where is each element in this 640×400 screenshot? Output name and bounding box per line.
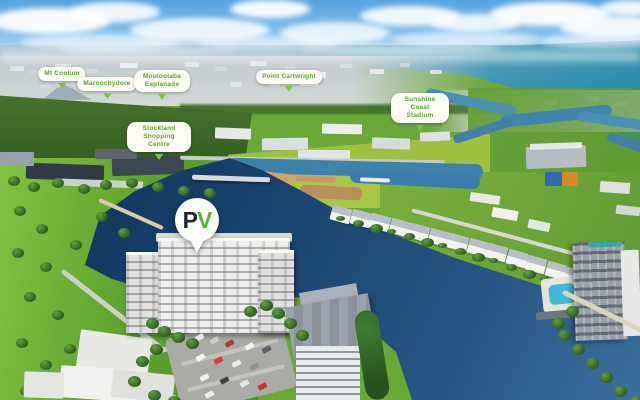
tree [158,326,171,337]
tree [552,318,565,329]
tree [506,264,517,271]
pin-letter-v: V [197,207,211,234]
tree [78,184,90,194]
treeline [180,104,510,114]
tree [136,356,149,367]
label-pointer-icon [158,94,166,100]
tree [40,262,52,272]
label-text: Maroochydore [83,80,130,87]
brand-pin: P V [175,198,219,256]
label-pointer-icon [416,125,424,131]
waterfront-tower [572,241,627,341]
tree [126,178,138,188]
label-text: Mt Coolum [44,70,79,77]
distant-building [120,63,138,68]
label-pointer-icon [103,93,111,99]
structure [372,137,410,149]
tree [28,182,40,192]
label-text: Stockland Shopping Centre [143,125,176,148]
structure [322,124,362,135]
tree [296,330,309,341]
location-label-stockland-shopping-centre: Stockland Shopping Centre [127,122,191,152]
tree [152,182,164,192]
structure [215,127,251,139]
aerial-photo: Mt Coolum Maroochydore Mooloolaba Esplan… [0,0,640,400]
tree [12,248,24,258]
clouds [0,0,640,62]
tree [630,396,640,400]
label-pointer-icon [58,83,66,89]
tree [572,344,585,355]
location-label-mooloolaba-esplanade: Mooloolaba Esplanade [134,70,190,92]
tree [118,228,130,238]
distant-building [400,63,410,67]
tree [204,188,216,198]
tree [387,229,396,234]
tree [523,270,536,279]
tree [36,224,48,234]
distant-building [185,62,199,67]
pin-head: P V [175,198,219,242]
tree [566,306,579,317]
tree [614,386,627,397]
tree [600,372,613,383]
tree [52,310,64,320]
distant-building [215,67,227,71]
distant-building [230,82,242,87]
tree [472,253,485,262]
tree [272,308,285,319]
cloud-icon [230,0,310,18]
structure [562,172,578,186]
tree [100,180,112,190]
building-roof [24,371,65,398]
tree [16,338,28,348]
cloud-icon [70,2,160,22]
tree [146,318,159,329]
distant-building [430,70,442,74]
label-pointer-icon [285,86,293,92]
tree [455,248,466,255]
tree [52,178,64,188]
tree [150,344,163,355]
tree [244,306,257,317]
tree [586,358,599,369]
cloud-icon [60,44,240,54]
structure [0,152,34,166]
label-text: Sunshine Coast Stadium [405,96,436,119]
tree [353,220,364,227]
location-label-point-cartwright: Point Cartwright [256,70,322,84]
structure [545,172,563,186]
structure [420,131,450,141]
cloud-icon [540,34,640,48]
label-text: Point Cartwright [262,73,316,80]
tree [284,318,297,329]
tree [558,330,571,341]
cloud-icon [300,44,500,54]
tree [168,396,181,400]
distant-building [40,84,50,88]
distant-building [340,64,352,68]
tree [260,300,273,311]
tree [186,338,199,349]
location-label-maroochydore: Maroochydore [77,77,136,91]
tree [148,390,161,400]
distant-building [10,66,24,71]
tree [336,216,345,221]
tree [8,176,20,186]
tree [40,360,52,370]
structure [262,138,308,151]
tree [404,233,415,240]
tree [96,212,108,222]
tree [24,292,36,302]
tree [128,376,141,387]
location-label-sunshine-coast-stadium: Sunshine Coast Stadium [391,93,449,123]
tree [64,344,76,354]
distant-building [250,61,266,66]
label-pointer-icon [155,154,163,160]
label-text: Mooloolaba Esplanade [143,73,181,88]
distant-building [85,69,97,73]
building-roof [111,369,176,400]
tree [14,206,26,216]
tree [421,238,434,247]
tree [438,243,447,248]
pin-letter-p: P [183,207,197,234]
tree [172,332,185,343]
structure [600,181,631,194]
tree [70,240,82,250]
distant-building [370,69,384,74]
secondary-building-facade [296,346,360,400]
tree [178,186,190,196]
